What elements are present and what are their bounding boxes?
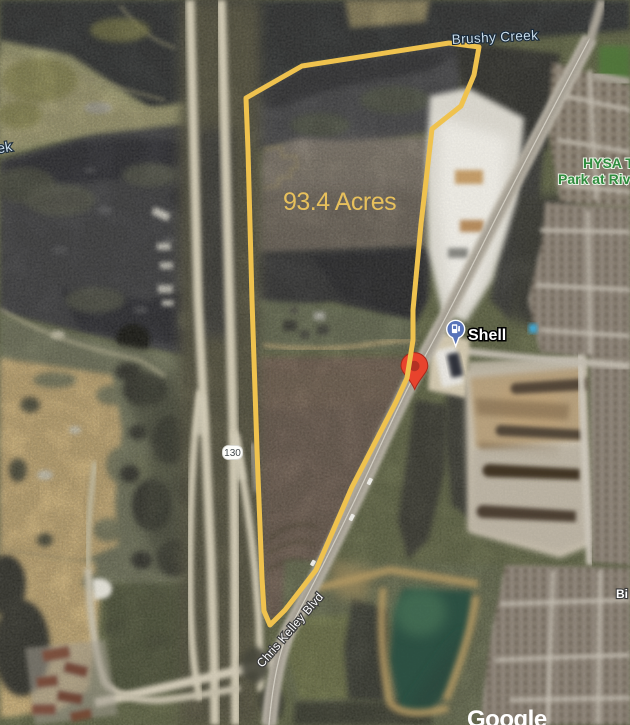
svg-text:93.4 Acres: 93.4 Acres (283, 188, 396, 216)
svg-text:Park at Riv: Park at Riv (558, 171, 630, 187)
svg-text:Bi: Bi (616, 587, 628, 601)
svg-text:Shell: Shell (468, 327, 506, 344)
svg-text:130: 130 (224, 448, 241, 459)
svg-text:Google: Google (467, 706, 547, 725)
svg-text:HYSA T: HYSA T (583, 155, 630, 171)
